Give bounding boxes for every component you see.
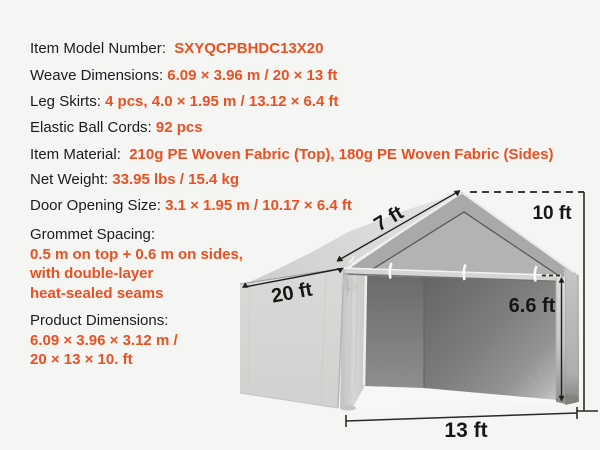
svg-text:6.6 ft: 6.6 ft	[509, 295, 556, 317]
svg-text:13 ft: 13 ft	[444, 419, 487, 442]
svg-text:10 ft: 10 ft	[532, 203, 572, 224]
